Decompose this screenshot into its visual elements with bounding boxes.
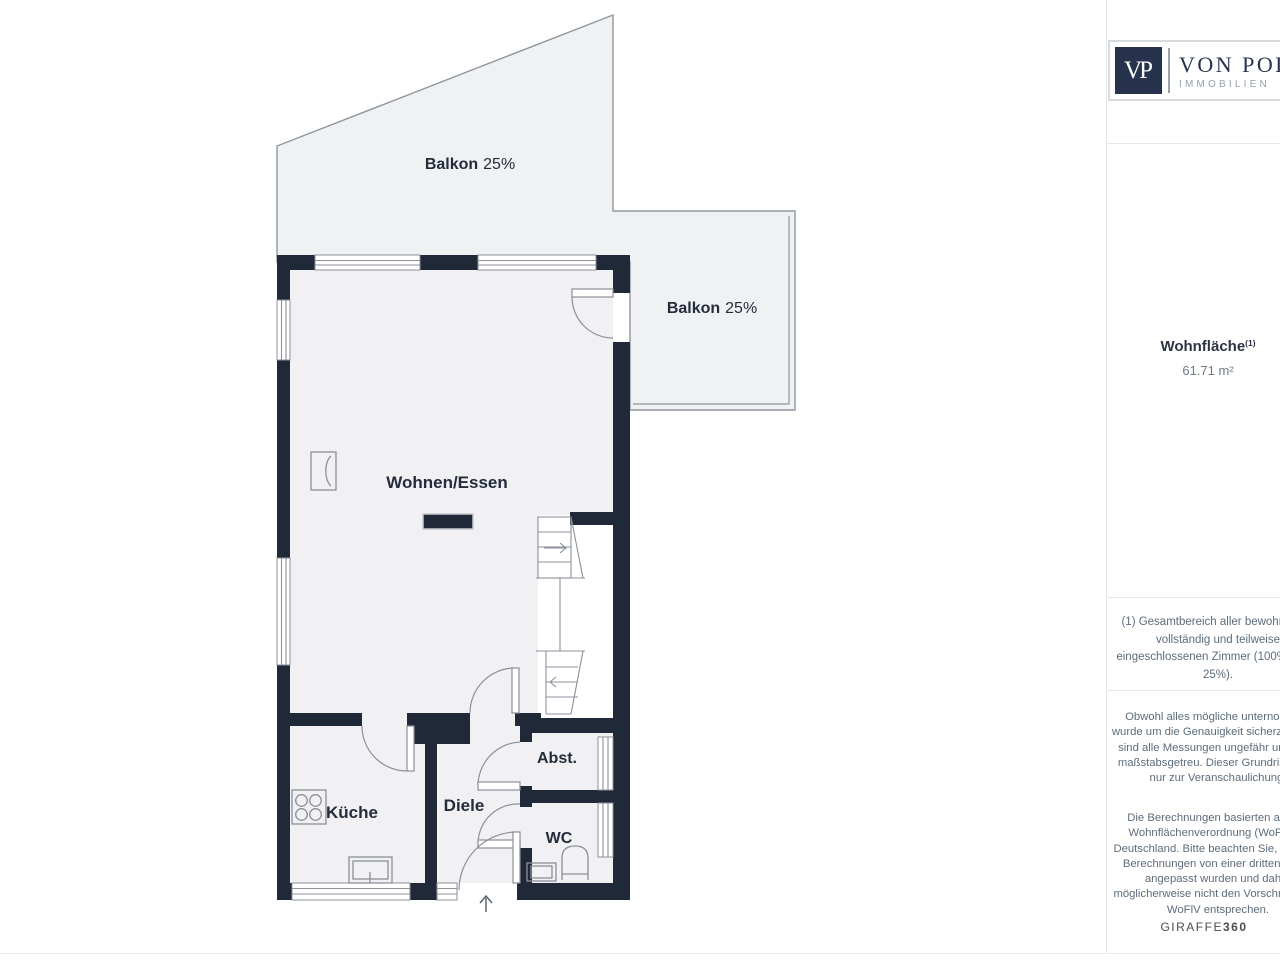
- section-divider-3: [1107, 690, 1280, 691]
- brand-text: VON POLL IMMOBILIEN: [1179, 52, 1280, 90]
- living-area-value: 61.71 m²: [1108, 363, 1280, 378]
- bottom-border: [0, 953, 1280, 954]
- living-area-block: Wohnfläche(1) 61.71 m²: [1108, 338, 1280, 378]
- floorplan-svg: Balkon25% Balkon25% Wohnen/Essen Küche D…: [0, 0, 1106, 960]
- brand-logo: VP VON POLL IMMOBILIEN: [1108, 40, 1280, 101]
- disclaimer-accuracy: Obwohl alles mögliche unternommen wurde …: [1110, 710, 1280, 786]
- room-label-wc: WC: [546, 830, 573, 847]
- room-label-living: Wohnen/Essen: [386, 473, 508, 492]
- disclaimer-wofiv: Die Berechnungen basierten auf der Wohnf…: [1110, 811, 1280, 918]
- logo-separator: [1168, 48, 1170, 93]
- brand-monogram-icon: VP: [1115, 47, 1162, 94]
- room-label-balcony-top: Balkon25%: [425, 156, 515, 173]
- living-area-label: Wohnfläche(1): [1108, 338, 1280, 355]
- entrance-arrow: [480, 896, 492, 912]
- room-label-storage: Abst.: [537, 750, 577, 767]
- radiator: [311, 452, 336, 490]
- giraffe360-watermark: GIRAFFE360: [1108, 920, 1280, 934]
- chimney-pillar: [423, 514, 473, 529]
- section-divider-1: [1107, 143, 1280, 144]
- footnote-mark: (1): [1245, 338, 1255, 348]
- brand-name: VON POLL: [1179, 52, 1280, 78]
- footnote-1: (1) Gesamtbereich aller bewohnbaren voll…: [1110, 614, 1280, 684]
- brand-subtitle: IMMOBILIEN: [1179, 79, 1280, 90]
- section-divider-2: [1107, 597, 1280, 598]
- room-label-hallway: Diele: [444, 796, 485, 815]
- room-label-balcony-right: Balkon25%: [667, 300, 757, 317]
- room-label-kitchen: Küche: [326, 803, 378, 822]
